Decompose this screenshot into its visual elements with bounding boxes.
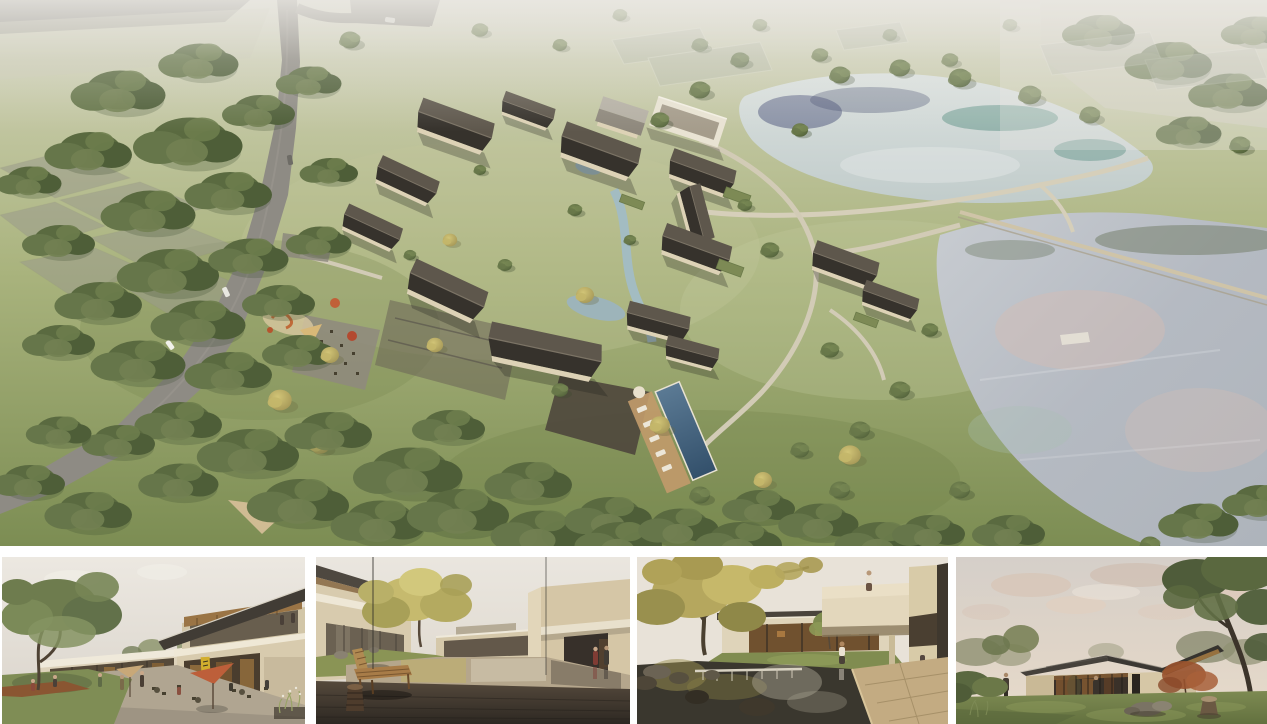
aerial-render-panel bbox=[0, 0, 1267, 546]
presentation-board bbox=[0, 0, 1267, 724]
cascade-pond bbox=[637, 659, 872, 724]
street-render-panel bbox=[2, 557, 305, 724]
dusk-pavilion-panel bbox=[956, 557, 1267, 724]
garden-courtyard-panel bbox=[637, 557, 948, 724]
log-stool bbox=[346, 684, 364, 711]
reflecting-courtyard-panel bbox=[316, 557, 630, 724]
parapet-figure bbox=[866, 571, 872, 592]
pond-figure bbox=[839, 642, 845, 665]
